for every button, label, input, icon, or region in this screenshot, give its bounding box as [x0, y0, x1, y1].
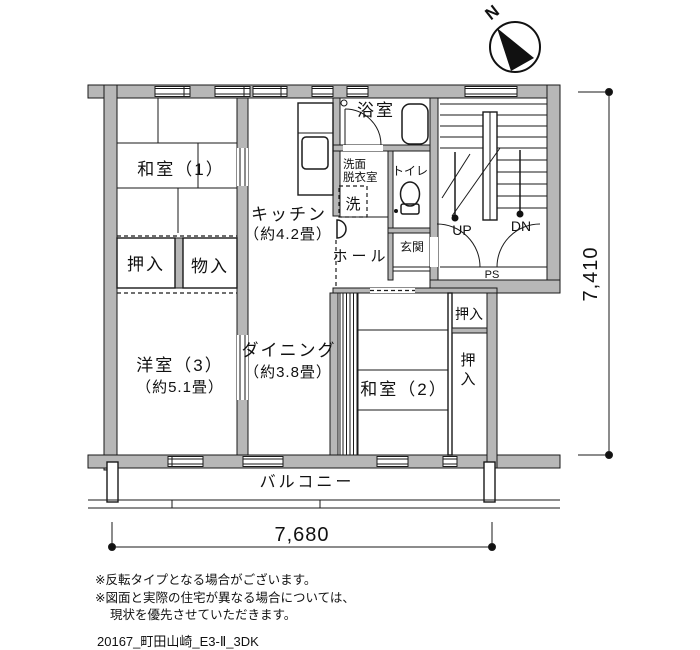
window-bottom-2 [243, 457, 283, 467]
label-washitsu2: 和室（2） [360, 380, 447, 399]
window-top-3 [253, 86, 287, 97]
label-washer: 洗 [345, 196, 360, 213]
label-yoshitsu3: 洋室（3） [136, 356, 223, 375]
window-top-2 [215, 86, 250, 97]
room-kitchen: キッチン （約4.2畳） [244, 103, 333, 243]
label-oshiire-right: 押入 [459, 352, 476, 390]
label-washroom-line2: 脱衣室 [343, 170, 378, 184]
stair-treads-down [497, 160, 547, 208]
toilet-dot-icon [394, 209, 398, 213]
door-washitsu1-kitchen [237, 148, 248, 186]
label-balcony: バルコニー [260, 474, 355, 491]
wall-oshiire-mononyuu [175, 238, 183, 288]
stairwell: UP DN PS [437, 104, 547, 281]
room-dining: ダイニング （約3.8畳） [242, 341, 337, 381]
label-genkan: 玄関 [400, 239, 424, 254]
label-oshiire-right-top: 押入 [455, 306, 483, 322]
label-bath: 浴室 [357, 101, 395, 120]
window-top-bath [347, 87, 368, 97]
label-kitchen-size: （約4.2畳） [244, 226, 332, 243]
door-hall-washitsu2 [370, 288, 415, 293]
balcony-post-left [107, 462, 118, 502]
bath-door-gap [343, 145, 383, 151]
note-line-2: ※図面と実際の住宅が異なる場合については、 [95, 590, 355, 605]
floor-plan-page: N [0, 0, 700, 650]
room-washitsu2: 和室（2） 押入 押入 [340, 293, 483, 455]
notes: ※反転タイプとなる場合がございます。 ※図面と実際の住宅が異なる場合については、… [95, 572, 355, 649]
room-toilet: トイレ [392, 164, 428, 214]
balcony: バルコニー [88, 462, 560, 508]
window-top-stair [465, 87, 517, 97]
bathtub [402, 104, 428, 144]
room-washitsu1: 和室（1） [117, 98, 237, 233]
wall-unit-right-lower [487, 288, 497, 468]
window-top-1 [155, 86, 190, 97]
label-yoshitsu3-size: （約5.1畳） [136, 379, 224, 396]
label-dining-size: （約3.8畳） [244, 364, 332, 381]
label-ps: PS [485, 269, 500, 281]
hall-door-icon [337, 220, 346, 238]
drawing-id: 20167_町田山崎_E3-Ⅱ_3DK [97, 634, 259, 649]
engawa-hatch-strip [340, 293, 358, 455]
label-up: UP [452, 222, 471, 238]
floor-plan-svg: N [0, 0, 700, 650]
room-washroom: 洗面 脱衣室 洗 [339, 158, 388, 217]
wall-left [104, 85, 117, 470]
stair-up-arrow [452, 152, 459, 222]
wall-washitsu2-oshiire [448, 293, 452, 455]
room-yoshitsu3: 洋室（3） （約5.1畳） [136, 356, 224, 396]
wall-washroom-toilet [388, 151, 393, 228]
north-compass: N [481, 1, 540, 72]
note-line-1: ※反転タイプとなる場合がございます。 [95, 572, 316, 587]
dimensions: 7,410 7,680 [109, 89, 613, 551]
wall-toilet-genkan [388, 228, 430, 233]
window-bottom-3 [377, 457, 408, 467]
toilet-bowl-icon [401, 182, 420, 206]
wall-right-stair [547, 85, 560, 293]
bath-drain-icon [341, 100, 347, 106]
label-kitchen: キッチン [251, 205, 327, 224]
note-line-3: 現状を優先させていただきます。 [110, 608, 296, 622]
balcony-post-right [484, 462, 495, 502]
label-washroom-line1: 洗面 [343, 158, 366, 171]
window-bottom-1 [168, 456, 203, 467]
room-genkan: 玄関 [393, 239, 430, 271]
window-bottom-4 [443, 457, 457, 467]
label-mononyuu: 物入 [191, 257, 229, 276]
label-dining: ダイニング [242, 341, 337, 360]
wall-oshiire-divider [452, 328, 487, 333]
label-washitsu1: 和室（1） [137, 160, 224, 179]
label-oshiire-upper: 押入 [127, 255, 165, 274]
door-gap-entry [430, 237, 438, 267]
label-hall: ホール [332, 248, 389, 265]
window-top-kitchen [312, 87, 333, 97]
label-dim-vertical: 7,410 [580, 246, 602, 301]
compass-north-label: N [481, 1, 502, 24]
room-hall: ホール [332, 220, 389, 265]
label-dim-horizontal: 7,680 [274, 524, 329, 546]
room-bath: 浴室 [341, 100, 428, 151]
label-toilet: トイレ [392, 164, 428, 178]
